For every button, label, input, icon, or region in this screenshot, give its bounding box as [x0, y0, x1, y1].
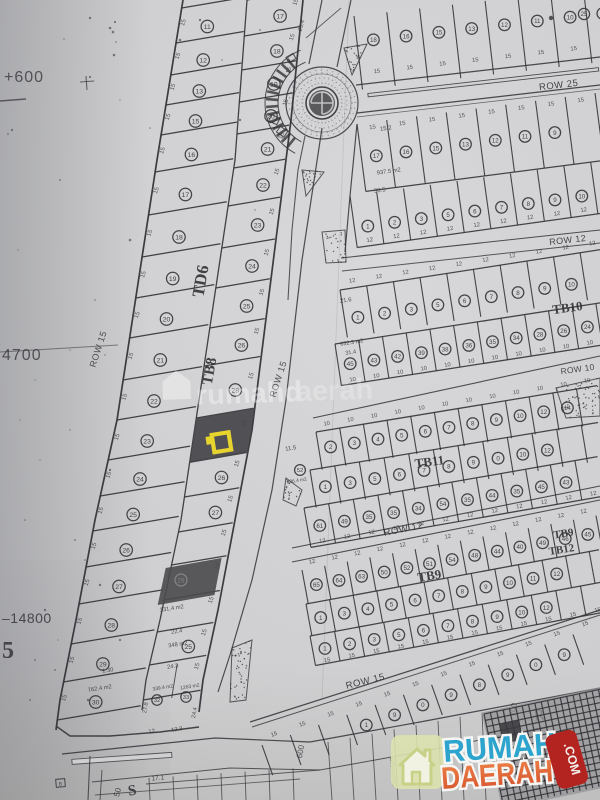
svg-text:3: 3	[353, 440, 357, 447]
svg-text:10: 10	[465, 397, 472, 404]
svg-text:12: 12	[331, 555, 338, 562]
svg-text:28: 28	[536, 332, 543, 339]
svg-text:12: 12	[354, 550, 361, 557]
svg-text:5: 5	[436, 302, 440, 309]
svg-text:7: 7	[437, 593, 441, 600]
svg-text:12: 12	[467, 529, 474, 536]
svg-text:10: 10	[567, 15, 574, 22]
svg-text:12: 12	[429, 265, 436, 272]
svg-text:15: 15	[397, 644, 404, 651]
svg-text:43: 43	[563, 480, 570, 487]
svg-text:10: 10	[323, 421, 330, 428]
svg-text:10: 10	[539, 347, 546, 354]
svg-text:18: 18	[273, 48, 281, 55]
svg-text:20: 20	[163, 316, 171, 323]
svg-text:6: 6	[463, 298, 467, 305]
svg-text:3: 3	[372, 637, 376, 644]
svg-text:12: 12	[399, 542, 406, 549]
svg-text:15: 15	[520, 621, 527, 628]
svg-text:23: 23	[143, 438, 151, 445]
svg-text:9: 9	[543, 286, 547, 293]
svg-text:63: 63	[358, 574, 365, 581]
svg-text:15: 15	[496, 625, 503, 632]
svg-text:12: 12	[148, 729, 155, 736]
svg-text:34: 34	[415, 506, 422, 513]
svg-text:6: 6	[398, 472, 402, 479]
svg-text:12: 12	[375, 274, 382, 281]
svg-text:1: 1	[365, 722, 369, 729]
svg-text:10: 10	[568, 282, 575, 289]
svg-text:12: 12	[376, 546, 383, 553]
svg-text:12: 12	[512, 521, 519, 528]
svg-text:12: 12	[516, 504, 523, 511]
svg-text:26: 26	[238, 342, 246, 349]
svg-text:48: 48	[471, 553, 478, 560]
svg-text:10: 10	[420, 366, 427, 373]
svg-text:12: 12	[491, 508, 498, 515]
svg-text:9: 9	[495, 417, 499, 424]
svg-text:21: 21	[264, 146, 272, 153]
svg-text:2: 2	[383, 310, 387, 317]
svg-text:18: 18	[370, 37, 377, 44]
svg-text:12: 12	[580, 508, 587, 515]
svg-text:10: 10	[489, 393, 496, 400]
svg-text:38: 38	[442, 346, 449, 353]
svg-text:7: 7	[490, 294, 494, 301]
svg-text:12: 12	[565, 495, 572, 502]
svg-text:64: 64	[336, 578, 343, 585]
svg-text:12: 12	[482, 257, 489, 264]
svg-text:4: 4	[376, 436, 380, 443]
svg-text:11: 11	[204, 24, 211, 31]
svg-text:15: 15	[488, 109, 495, 116]
svg-text:13: 13	[468, 26, 475, 33]
svg-text:15: 15	[373, 648, 380, 655]
svg-text:15: 15	[545, 616, 552, 623]
svg-text:5: 5	[373, 476, 377, 483]
svg-text:10: 10	[586, 340, 593, 347]
svg-text:+600: +600	[4, 69, 44, 86]
svg-text:1: 1	[366, 223, 370, 230]
svg-text:12: 12	[540, 409, 547, 416]
svg-text:12: 12	[402, 270, 409, 277]
svg-text:15: 15	[577, 97, 584, 104]
svg-text:13: 13	[196, 88, 204, 95]
svg-text:15: 15	[373, 69, 380, 76]
svg-text:16: 16	[188, 152, 196, 159]
svg-text:10: 10	[517, 413, 524, 420]
svg-text:54: 54	[439, 501, 446, 508]
svg-text:15: 15	[406, 65, 413, 72]
svg-text:17: 17	[373, 153, 380, 160]
svg-text:15: 15	[472, 57, 479, 64]
svg-text:1: 1	[324, 484, 328, 491]
svg-text:10: 10	[418, 405, 425, 412]
svg-text:6: 6	[422, 628, 426, 635]
svg-text:6: 6	[473, 208, 477, 215]
svg-text:12: 12	[492, 138, 499, 145]
svg-text:9: 9	[562, 652, 566, 659]
svg-text:2: 2	[348, 641, 352, 648]
svg-text:12: 12	[444, 534, 451, 541]
svg-text:8: 8	[471, 618, 475, 625]
svg-text:15: 15	[432, 145, 439, 152]
svg-text:24: 24	[136, 476, 144, 483]
svg-text:1: 1	[356, 315, 360, 322]
svg-text:44: 44	[489, 493, 496, 500]
svg-text:5: 5	[446, 212, 450, 219]
svg-text:24: 24	[248, 263, 256, 270]
svg-text:1: 1	[319, 615, 323, 622]
svg-text:15: 15	[446, 634, 453, 641]
svg-text:12: 12	[544, 447, 551, 454]
svg-text:9: 9	[553, 130, 557, 137]
svg-text:52: 52	[403, 565, 410, 572]
svg-text:12: 12	[446, 226, 453, 233]
svg-text:45: 45	[584, 532, 591, 539]
svg-text:16: 16	[403, 33, 410, 40]
svg-text:49: 49	[539, 540, 546, 547]
svg-text:5: 5	[390, 602, 394, 609]
svg-text:15: 15	[422, 639, 429, 646]
svg-text:10: 10	[373, 373, 380, 380]
svg-text:10: 10	[506, 580, 513, 587]
svg-text:13: 13	[462, 141, 469, 148]
svg-text:11: 11	[534, 18, 541, 25]
svg-text:9: 9	[393, 712, 397, 719]
svg-text:0: 0	[421, 702, 425, 709]
svg-text:9: 9	[484, 584, 488, 591]
svg-text:8: 8	[527, 201, 531, 208]
svg-text:15: 15	[348, 653, 355, 660]
svg-text:10: 10	[468, 358, 475, 365]
svg-text:39: 39	[418, 350, 425, 357]
svg-text:35: 35	[464, 497, 471, 504]
svg-text:18: 18	[175, 234, 183, 241]
svg-text:15: 15	[369, 124, 376, 131]
svg-text:24: 24	[584, 324, 591, 331]
svg-text:34: 34	[513, 335, 520, 342]
svg-text:12: 12	[366, 237, 373, 244]
svg-text:12: 12	[535, 517, 542, 524]
svg-text:45: 45	[347, 361, 354, 368]
svg-text:9: 9	[553, 197, 557, 204]
svg-text:26: 26	[560, 328, 567, 335]
svg-text:10: 10	[397, 369, 404, 376]
svg-text:49: 49	[341, 519, 348, 526]
svg-text:35: 35	[513, 488, 520, 495]
svg-text:12: 12	[199, 57, 207, 64]
svg-text:15: 15	[518, 105, 525, 112]
svg-text:10: 10	[371, 413, 378, 420]
svg-text:25: 25	[243, 303, 251, 310]
svg-text:65: 65	[313, 582, 320, 589]
svg-text:10: 10	[563, 344, 570, 351]
svg-text:26: 26	[218, 475, 226, 482]
svg-text:3: 3	[343, 610, 347, 617]
svg-text:35: 35	[489, 339, 496, 346]
svg-text:11: 11	[530, 576, 537, 583]
svg-text:15: 15	[537, 50, 544, 57]
svg-text:3: 3	[420, 216, 424, 223]
svg-text:12: 12	[500, 218, 507, 225]
svg-text:12: 12	[422, 538, 429, 545]
svg-text:43: 43	[370, 357, 377, 364]
svg-text:10: 10	[513, 389, 520, 396]
svg-text:12: 12	[562, 245, 569, 252]
svg-text:12: 12	[557, 513, 564, 520]
svg-text:25: 25	[581, 12, 588, 18]
svg-text:27: 27	[212, 510, 220, 517]
svg-text:25: 25	[129, 512, 137, 519]
svg-text:12: 12	[527, 215, 534, 222]
svg-text:2: 2	[329, 444, 333, 451]
svg-text:10: 10	[394, 409, 401, 416]
svg-text:54: 54	[449, 557, 456, 564]
svg-text:15: 15	[324, 657, 331, 664]
svg-text:19: 19	[169, 276, 177, 283]
svg-text:6: 6	[424, 429, 428, 436]
svg-text:9: 9	[449, 692, 453, 699]
svg-text:12: 12	[589, 241, 596, 248]
svg-text:9: 9	[472, 460, 476, 467]
svg-text:12: 12	[553, 571, 560, 578]
svg-text:50: 50	[381, 569, 388, 576]
svg-text:3: 3	[348, 480, 352, 487]
svg-text:10: 10	[347, 417, 354, 424]
svg-text:12: 12	[489, 525, 496, 532]
svg-text:rumahd: rumahd	[195, 376, 302, 412]
svg-text:7: 7	[446, 623, 450, 630]
svg-text:15: 15	[458, 113, 465, 120]
svg-text:10: 10	[444, 362, 451, 369]
svg-text:7: 7	[500, 205, 504, 212]
svg-text:23: 23	[254, 222, 262, 229]
svg-text:aerah: aerah	[295, 374, 373, 409]
svg-text:15: 15	[399, 121, 406, 128]
svg-text:12: 12	[580, 207, 587, 214]
svg-text:27: 27	[115, 584, 123, 591]
svg-text:0: 0	[534, 662, 538, 669]
svg-text:8: 8	[478, 682, 482, 689]
svg-text:15: 15	[192, 118, 200, 125]
svg-text:6: 6	[413, 597, 417, 604]
svg-text:12: 12	[349, 278, 356, 285]
svg-text:9: 9	[506, 672, 510, 679]
svg-text:33: 33	[183, 695, 189, 701]
svg-text:28: 28	[108, 622, 116, 629]
svg-text:10: 10	[442, 401, 449, 408]
svg-text:12: 12	[540, 499, 547, 506]
svg-text:10: 10	[578, 193, 585, 200]
svg-text:10: 10	[536, 386, 543, 393]
svg-text:12: 12	[455, 261, 462, 268]
svg-text:5: 5	[2, 638, 14, 664]
svg-text:12: 12	[420, 230, 427, 237]
svg-text:22: 22	[150, 398, 158, 405]
svg-text:12: 12	[553, 211, 560, 218]
svg-text:17: 17	[276, 13, 284, 20]
svg-text:12: 12	[309, 559, 316, 566]
svg-text:12: 12	[535, 249, 542, 256]
svg-text:40: 40	[516, 544, 523, 551]
svg-text:42: 42	[394, 354, 401, 361]
svg-text:17: 17	[182, 192, 190, 199]
svg-text:8: 8	[447, 464, 451, 471]
svg-text:10: 10	[560, 382, 567, 389]
svg-text:15: 15	[471, 630, 478, 637]
svg-text:15: 15	[439, 61, 446, 68]
svg-text:26: 26	[122, 547, 130, 554]
svg-text:15: 15	[435, 30, 442, 37]
svg-text:10: 10	[519, 451, 526, 458]
svg-text:12: 12	[501, 22, 508, 29]
svg-text:12: 12	[393, 233, 400, 240]
svg-text:15: 15	[570, 46, 577, 53]
svg-text:44: 44	[494, 548, 501, 555]
svg-text:45: 45	[538, 484, 545, 491]
svg-text:15: 15	[505, 54, 512, 61]
svg-text:5: 5	[400, 432, 404, 439]
svg-text:2: 2	[393, 220, 397, 227]
svg-text:–14800: –14800	[2, 610, 52, 626]
svg-text:8: 8	[461, 589, 465, 596]
svg-text:12: 12	[543, 605, 550, 612]
svg-text:32: 32	[154, 698, 160, 704]
svg-text:10: 10	[515, 351, 522, 358]
svg-text:3: 3	[410, 306, 414, 313]
svg-text:15: 15	[429, 117, 436, 124]
svg-text:9: 9	[495, 614, 499, 621]
svg-text:21: 21	[157, 357, 165, 364]
svg-text:7: 7	[447, 425, 451, 432]
svg-text:16: 16	[403, 149, 410, 156]
svg-text:61: 61	[316, 523, 323, 530]
svg-text:12: 12	[473, 222, 480, 229]
svg-text:22: 22	[259, 182, 267, 189]
svg-text:8: 8	[471, 421, 475, 428]
svg-text:15: 15	[548, 101, 555, 108]
svg-text:10: 10	[518, 609, 525, 616]
svg-text:29: 29	[177, 577, 185, 584]
svg-text:11: 11	[522, 134, 529, 141]
svg-text:14: 14	[564, 405, 571, 412]
svg-text:36: 36	[465, 343, 472, 350]
svg-text:12: 12	[590, 491, 597, 498]
svg-text:35: 35	[390, 510, 397, 517]
svg-text:12: 12	[509, 253, 516, 260]
svg-text:5: 5	[397, 632, 401, 639]
svg-text:4: 4	[366, 606, 370, 613]
svg-text:30: 30	[92, 699, 100, 706]
svg-text:52: 52	[297, 468, 303, 474]
svg-text:8: 8	[516, 290, 520, 297]
svg-text:35: 35	[366, 514, 373, 521]
svg-text:17.1: 17.1	[151, 774, 165, 782]
svg-text:10: 10	[491, 355, 498, 362]
svg-text:0: 0	[496, 456, 500, 463]
